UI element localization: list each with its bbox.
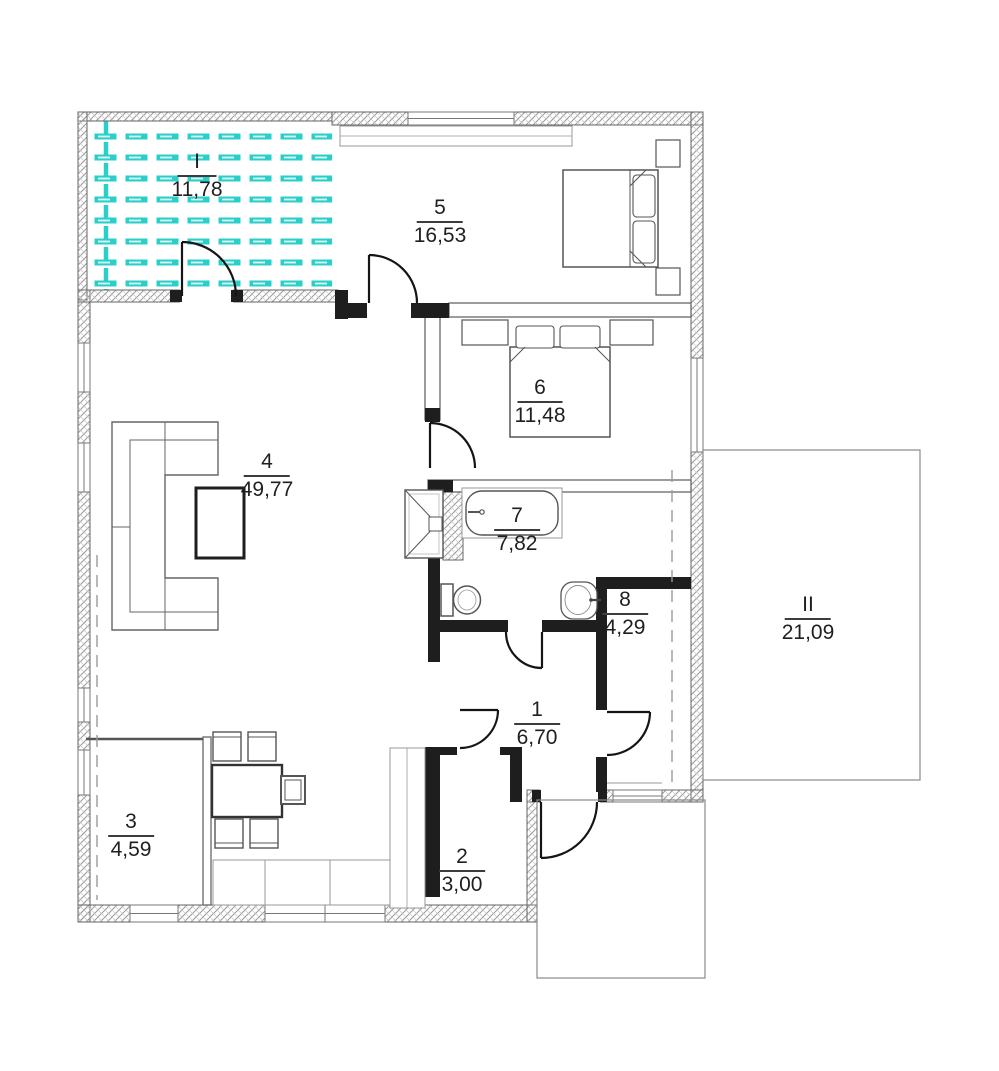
room-number: 7	[494, 504, 540, 531]
room-number: 1	[514, 698, 560, 725]
room-number: 8	[602, 588, 648, 615]
room-number: I	[177, 150, 217, 177]
room5-wall-closet	[340, 126, 572, 146]
room-label-7: 7 7,82	[494, 504, 540, 556]
kitchen-counter	[213, 860, 390, 905]
room-label-8: 8 4,29	[602, 588, 648, 640]
chair-inner	[285, 780, 301, 800]
terrace-deck-hatching	[87, 121, 332, 290]
wardrobe-room2	[390, 748, 425, 908]
coffee-table	[196, 488, 244, 558]
room-label-2: 2 3,00	[439, 845, 485, 897]
room-number: 2	[439, 845, 485, 872]
chair	[250, 819, 278, 848]
room-area: 49,77	[241, 477, 294, 502]
dining-table	[212, 765, 282, 817]
entrance-porch-outline	[537, 800, 705, 978]
room-area: 7,82	[497, 531, 538, 556]
room-label-1: 1 6,70	[514, 698, 560, 750]
shower-cabin	[405, 490, 443, 558]
room-area: 16,53	[414, 223, 467, 248]
bedroom5-door	[369, 255, 417, 303]
bedroom6-door	[430, 423, 475, 468]
dining-set	[212, 732, 305, 848]
room-number: 3	[108, 810, 154, 837]
room-area: 3,00	[442, 872, 483, 897]
room-label-4: 4 49,77	[241, 450, 294, 502]
room-number: 4	[244, 450, 290, 477]
nightstand	[610, 320, 653, 345]
room-area: 4,59	[111, 837, 152, 862]
room-area: 11,78	[172, 177, 223, 202]
sink	[561, 582, 601, 619]
chair	[213, 732, 241, 761]
nightstand	[462, 320, 508, 345]
room-number: 6	[517, 376, 563, 403]
entrance-door	[541, 802, 597, 858]
room-label-5: 5 16,53	[414, 196, 467, 248]
chair	[215, 819, 243, 848]
pillow	[560, 326, 600, 348]
room-number: 5	[417, 196, 463, 223]
room-number: II	[785, 593, 831, 620]
room-label-3: 3 4,59	[108, 810, 154, 862]
pillow	[516, 326, 554, 348]
chair	[248, 732, 276, 761]
room-label-terrace-ii: II 21,09	[782, 593, 835, 645]
room-label-6: 6 11,48	[515, 376, 566, 428]
room-area: 11,48	[515, 403, 566, 428]
room-area: 4,29	[605, 615, 646, 640]
room-area: 6,70	[517, 725, 558, 750]
pillow	[633, 175, 655, 217]
tap-icon	[589, 598, 593, 602]
double-bed-room5	[563, 140, 680, 295]
bathroom-door	[506, 632, 542, 668]
closet-room2-door	[460, 710, 498, 748]
hallway-door	[607, 712, 650, 755]
nightstand	[656, 268, 680, 295]
room-area: 21,09	[782, 620, 835, 645]
nightstand	[656, 140, 680, 167]
floor-plan: I 11,78 5 16,53 6 11,48 4 49,77 7 7,82 8…	[0, 0, 999, 1071]
room-label-terrace-i: I 11,78	[172, 150, 223, 202]
toilet	[441, 584, 481, 616]
